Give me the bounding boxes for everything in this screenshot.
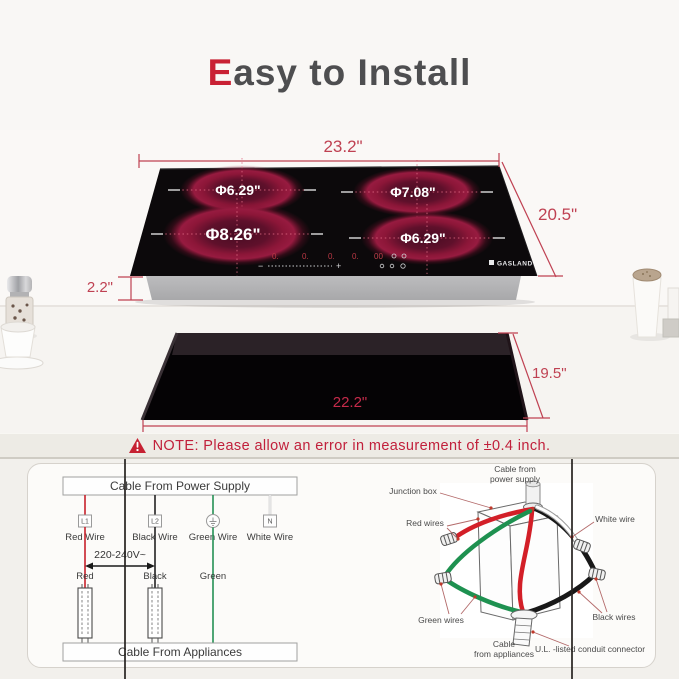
- label-cable-appliances-1: Cable: [493, 639, 515, 649]
- label-white-wire: White wire: [595, 514, 635, 524]
- black-tag: Black: [143, 571, 166, 582]
- voltage-arrow: [85, 563, 155, 570]
- table-leg-line-left: [124, 459, 126, 679]
- label-cable-appliances-2: from appliances: [474, 649, 534, 659]
- burner-size-label: Φ6.29": [400, 230, 445, 246]
- burner-size-label: Φ6.29": [215, 182, 260, 198]
- terminal-l2-label: L2: [151, 519, 159, 526]
- appliances-label: Cable From Appliances: [118, 645, 242, 659]
- note-banner: NOTE: Please allow an error in measureme…: [0, 433, 679, 459]
- zone-display-3: 0.: [328, 252, 335, 261]
- table-leg-line-right: [571, 459, 573, 679]
- cooktop-base: [146, 276, 521, 300]
- zone-display-4: 0.: [352, 252, 359, 261]
- timer-display: 00: [374, 252, 383, 261]
- terminal-n-label: N: [267, 519, 272, 526]
- red-tag: Red: [76, 571, 93, 582]
- note-text: NOTE: Please allow an error in measureme…: [153, 438, 551, 454]
- dim-cutout-depth: 19.5": [532, 365, 567, 382]
- installation-scene: Φ6.29" Φ7.08" Φ8.26" Φ6.29": [0, 130, 679, 433]
- junction-box-diagram: Cable from power supply Junction box Red…: [383, 462, 663, 668]
- wiring-diagram: Cable From Power Supply L1 L2 N Red Wire…: [40, 470, 300, 666]
- dim-cutout-width: 22.2": [333, 394, 368, 411]
- label-red-wires: Red wires: [406, 518, 444, 528]
- page: Easy to Install: [0, 0, 679, 679]
- label-cable-power-1: Cable from: [494, 464, 536, 474]
- label-junction-box: Junction box: [389, 486, 437, 496]
- black-connector-block: [148, 584, 162, 643]
- title-accent-letter: E: [208, 52, 234, 93]
- burner-size-label: Φ7.08": [390, 184, 435, 200]
- green-tag: Green: [200, 571, 226, 582]
- dim-cooktop-depth: 20.5": [538, 205, 577, 224]
- zone-display-1: 0.: [272, 252, 279, 261]
- label-black-wires: Black wires: [593, 612, 636, 622]
- terminal-l1-label: L1: [81, 519, 89, 526]
- power-supply-label: Cable From Power Supply: [110, 479, 250, 493]
- dim-cooktop-width: 23.2": [323, 137, 362, 156]
- slider-plus[interactable]: +: [336, 261, 341, 271]
- white-wire-name: White Wire: [247, 532, 293, 543]
- warning-icon: [129, 438, 146, 453]
- label-ul-connector: U.L. -listed conduit connector: [535, 644, 645, 654]
- red-connector-block: [78, 584, 92, 643]
- ground-terminal-icon: [207, 515, 220, 528]
- label-cable-power-2: power supply: [490, 474, 541, 484]
- zone-display-2: 0.: [302, 252, 309, 261]
- title-rest: asy to Install: [233, 52, 471, 93]
- label-green-wires: Green wires: [418, 615, 464, 625]
- dim-cooktop-height: 2.2": [87, 279, 113, 296]
- page-title: Easy to Install: [0, 52, 679, 94]
- burner-size-label: Φ8.26": [205, 225, 260, 244]
- slider-minus[interactable]: −: [258, 261, 263, 271]
- brand-logo-text: GASLAND: [497, 261, 533, 268]
- voltage-label: 220-240V~: [94, 549, 146, 561]
